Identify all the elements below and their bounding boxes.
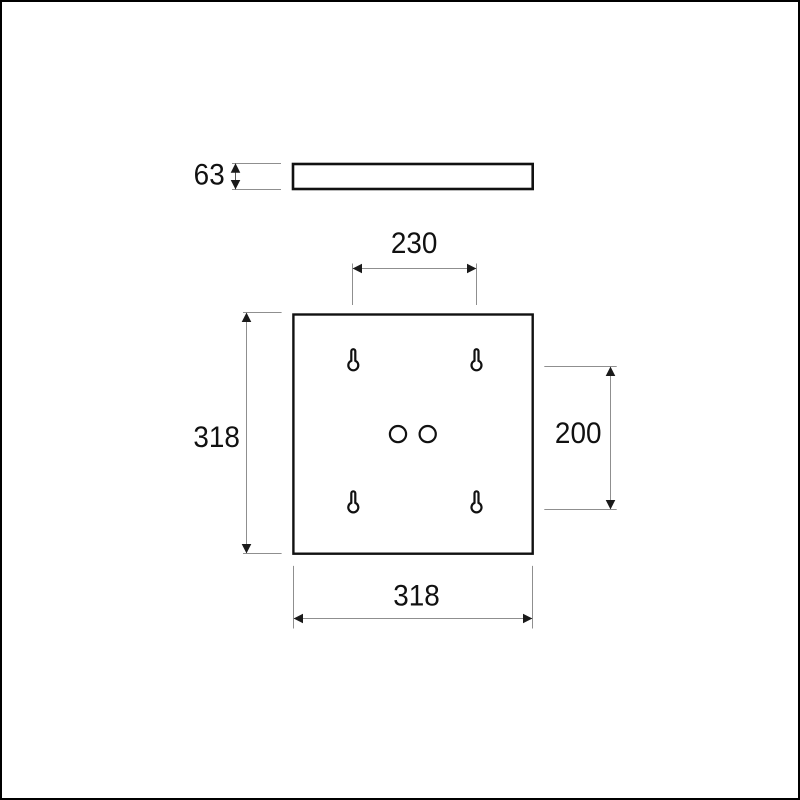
svg-text:318: 318 [193, 421, 240, 454]
svg-text:318: 318 [393, 580, 440, 613]
svg-text:230: 230 [391, 227, 438, 260]
svg-text:200: 200 [555, 417, 602, 450]
svg-text:63: 63 [194, 159, 225, 192]
